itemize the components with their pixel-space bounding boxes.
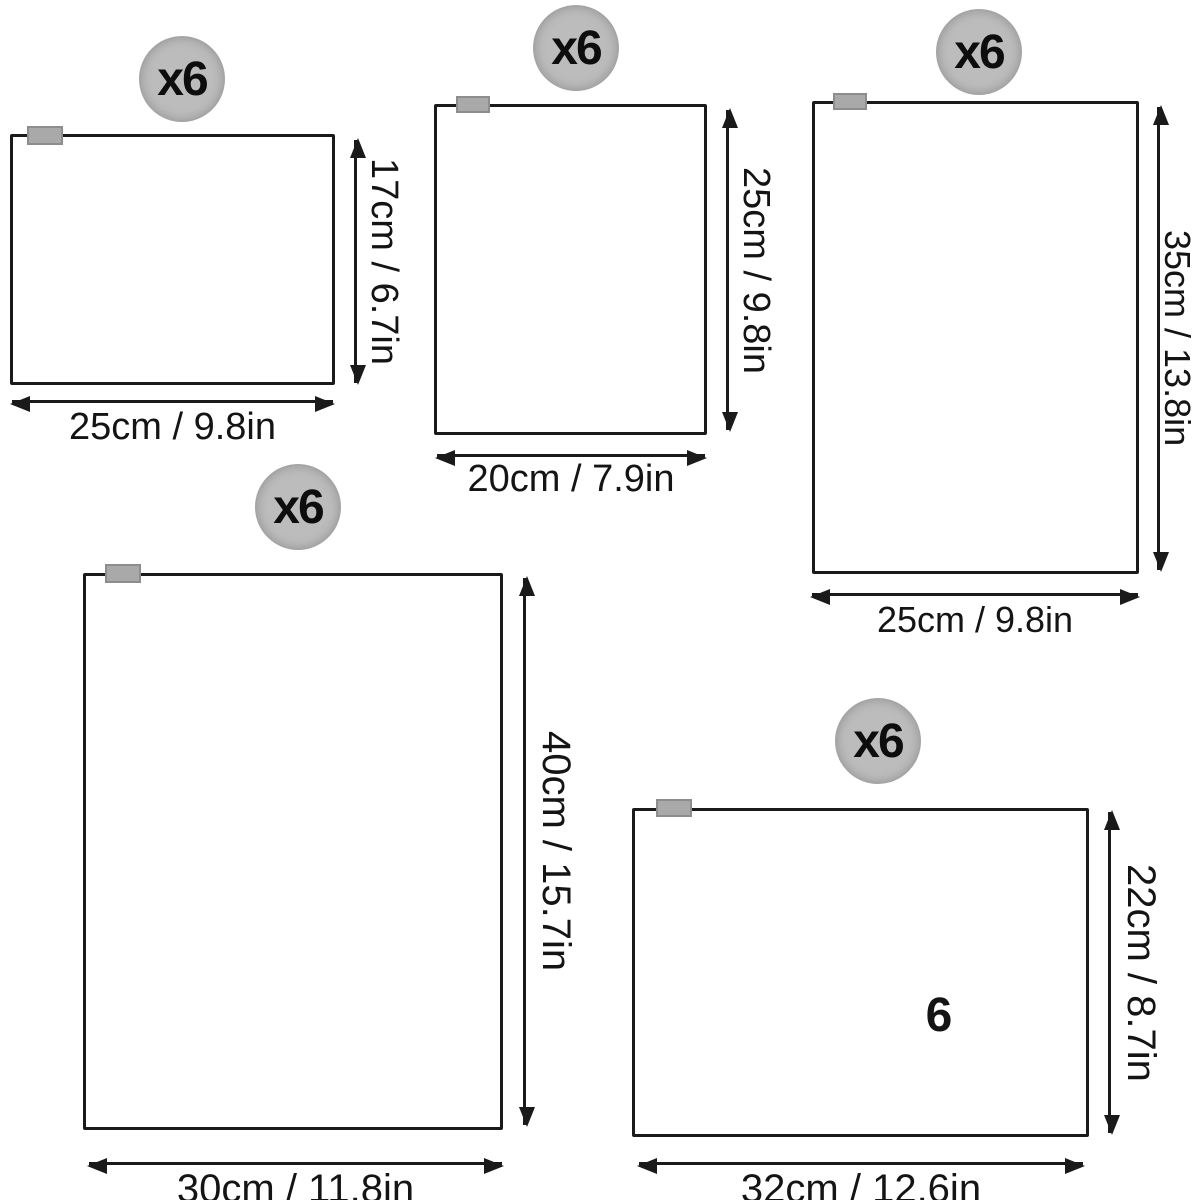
height-label: 17cm / 6.7in — [362, 140, 405, 383]
quantity-badge: x6 — [533, 5, 619, 91]
bag-outline — [10, 134, 335, 385]
bag-outline — [83, 573, 503, 1130]
zipper-tab-icon — [27, 126, 63, 145]
bag-size-diagram: x6 17cm / 6.7in 25cm / 9.8in x6 25cm / 9… — [0, 0, 1200, 1200]
height-label: 22cm / 8.7in — [1118, 812, 1163, 1133]
bag-outline — [812, 101, 1139, 574]
width-label: 20cm / 7.9in — [437, 458, 705, 501]
width-arrow — [812, 593, 1138, 596]
inner-count-label: 6 — [899, 988, 979, 1043]
zipper-tab-icon — [456, 96, 490, 113]
width-label: 32cm / 12.6in — [639, 1167, 1083, 1200]
height-label: 40cm / 15.7in — [533, 578, 578, 1125]
height-label: 35cm / 13.8in — [1156, 107, 1198, 570]
zipper-tab-icon — [105, 564, 141, 583]
zipper-tab-icon — [656, 799, 692, 817]
width-arrow — [89, 1162, 502, 1165]
height-arrow — [726, 110, 729, 430]
width-label: 25cm / 9.8in — [12, 406, 333, 449]
height-label: 25cm / 9.8in — [734, 110, 777, 430]
quantity-badge: x6 — [255, 464, 341, 550]
quantity-badge: x6 — [835, 698, 921, 784]
width-arrow — [12, 400, 333, 403]
quantity-badge: x6 — [936, 9, 1022, 95]
width-arrow — [639, 1162, 1083, 1165]
zipper-tab-icon — [833, 93, 867, 110]
height-arrow — [354, 140, 357, 383]
width-arrow — [437, 454, 705, 457]
height-arrow — [1108, 812, 1111, 1133]
bag-outline — [434, 104, 707, 435]
width-label: 30cm / 11.8in — [89, 1167, 502, 1200]
width-label: 25cm / 9.8in — [812, 599, 1138, 641]
height-arrow — [523, 578, 526, 1125]
bag-outline — [632, 808, 1089, 1137]
quantity-badge: x6 — [139, 36, 225, 122]
